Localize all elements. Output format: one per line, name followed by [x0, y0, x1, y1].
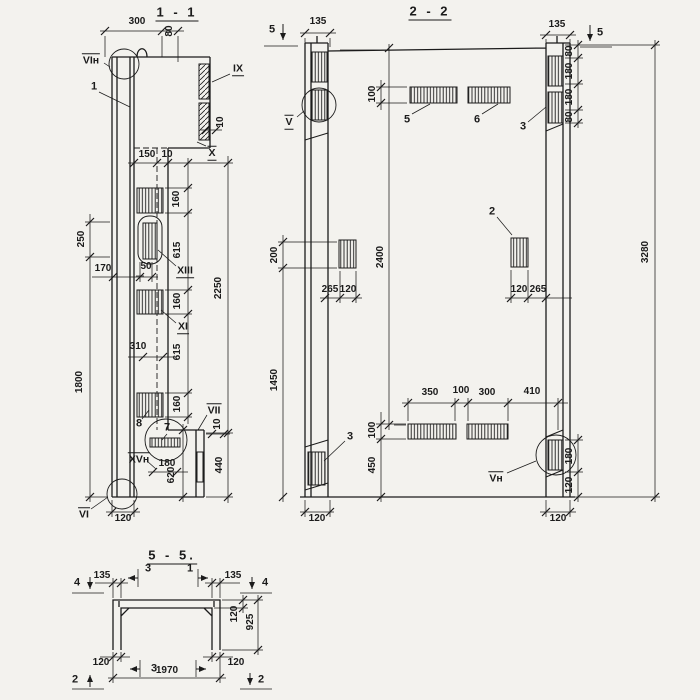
detail-ref-label: XIII: [176, 264, 194, 278]
dimension-label: 80: [164, 24, 176, 37]
section-1-1-outline: [112, 49, 210, 497]
dimension-label: 135: [548, 19, 567, 31]
detail-ref-label: IX: [232, 62, 244, 76]
dimension-label: 3280: [640, 240, 652, 264]
section-cut-label: 5: [596, 27, 604, 40]
embed-plate-V: [312, 90, 327, 120]
dimension-label: 160: [172, 292, 184, 311]
dimension-label: 310: [129, 341, 148, 353]
dimension-label: 615: [172, 343, 184, 362]
section-5-5-outline: [113, 600, 220, 650]
dimension-label: 135: [309, 16, 328, 28]
section-cut-label: 2: [257, 674, 265, 687]
dimension-label: 50: [139, 261, 152, 273]
part-number-label: 8: [135, 418, 143, 431]
detail-ref-label: VII: [207, 403, 222, 417]
dimension-label: 120: [564, 476, 576, 495]
embed-plate: [137, 188, 163, 213]
section-cut-label: 5: [268, 24, 276, 37]
dimension-label: 100: [452, 385, 471, 397]
dimension-label: 10: [212, 417, 224, 430]
part-number-label: 2: [488, 206, 496, 219]
dimension-label: 80: [564, 110, 576, 123]
embed-plate-5: [410, 87, 457, 103]
dimension-label: 135: [93, 570, 112, 582]
dimension-label: 180: [564, 447, 576, 466]
dimension-label: 10: [160, 149, 173, 161]
dimension-label: 620: [166, 466, 178, 485]
dimension-label: 1800: [74, 370, 86, 394]
slot-plate: [143, 223, 157, 259]
embed-plate: [312, 52, 327, 82]
section-cut-label: 2: [71, 674, 79, 687]
embed-plate-3-upper: [548, 56, 563, 86]
dimension-label: 300: [478, 387, 497, 399]
dimension-label: 2400: [375, 245, 387, 269]
part-number-label: 1: [186, 563, 194, 576]
dimension-label: 250: [76, 230, 88, 249]
embed-plate-8: [137, 393, 163, 417]
dimension-label: 1970: [155, 665, 179, 677]
embed-plate-Vn: [548, 440, 563, 470]
corner-angle-plate: [150, 438, 180, 447]
dimension-label: 100: [367, 421, 379, 440]
part-number-label: 3: [346, 431, 354, 444]
detail-ref-label: XVн: [128, 452, 150, 466]
dimension-label: 150: [138, 149, 157, 161]
dimension-label: 450: [367, 456, 379, 475]
dimension-label: 120: [339, 284, 358, 296]
part-number-label: 1: [90, 81, 98, 94]
embed-plate-6: [468, 87, 510, 103]
drawing-canvas: [0, 0, 700, 700]
dimension-label: 925: [245, 613, 257, 632]
dimension-label: 10: [215, 115, 227, 128]
part-number-label: 3: [519, 121, 527, 134]
embed-plate: [137, 290, 163, 314]
section-cut-label: 4: [261, 577, 269, 590]
embed-plate-3-lower: [548, 92, 563, 123]
detail-ref-label: VI: [78, 507, 90, 521]
bracket-plate: [197, 452, 203, 482]
dimension-label: 120: [229, 605, 241, 624]
section-title: 1 - 1: [155, 5, 198, 22]
embed-plate-IX-upper: [199, 64, 209, 99]
part-number-label: 7: [163, 422, 171, 435]
section-title: 2 - 2: [408, 4, 451, 21]
dimension-label: 2250: [213, 276, 225, 300]
dimension-label: 350: [421, 387, 440, 399]
detail-ref-label: X: [207, 146, 216, 161]
dimension-label: 300: [128, 16, 147, 28]
dimension-label: 265: [321, 284, 340, 296]
dimension-label: 135: [224, 570, 243, 582]
dimension-label: 120: [510, 284, 529, 296]
embed-plate-IX-lower: [199, 103, 209, 140]
dimension-label: 120: [227, 657, 246, 669]
embed-plate: [408, 424, 456, 439]
dimension-label: 160: [172, 395, 184, 414]
part-number-label: 5: [403, 114, 411, 127]
dimension-label: 120: [92, 657, 111, 669]
embed-plate-2: [511, 238, 528, 267]
dimension-label: 120: [549, 513, 568, 525]
detail-ref-label: VIн: [82, 53, 100, 67]
detail-ref-label: XI: [177, 320, 189, 334]
embed-plate-3-bottom: [308, 452, 325, 485]
dimension-label: 120: [308, 513, 327, 525]
dimension-label: 120: [114, 513, 133, 525]
detail-ref-label: Vн: [488, 471, 503, 485]
part-number-label: 3: [144, 563, 152, 576]
dimension-label: 410: [523, 386, 542, 398]
detail-ref-label: V: [284, 115, 293, 130]
dimension-label: 200: [269, 246, 281, 265]
dimension-label: 100: [367, 85, 379, 104]
blueprint-page: 1 - 130080VIн1IX10X15010160615225017050X…: [0, 0, 700, 700]
section-2-2-drawing: [264, 24, 660, 517]
dimension-label: 160: [171, 190, 183, 209]
section-cut-label: 4: [73, 577, 81, 590]
part-number-label: 6: [473, 114, 481, 127]
dimension-label: 80: [564, 44, 576, 57]
embed-plate: [467, 424, 508, 439]
dimension-label: 265: [529, 284, 548, 296]
dimension-label: 615: [172, 241, 184, 260]
dimension-label: 180: [564, 88, 576, 107]
dimension-label: 440: [214, 456, 226, 475]
dimension-label: 1450: [269, 368, 281, 392]
dimension-label: 180: [564, 62, 576, 81]
dimension-label: 170: [94, 263, 113, 275]
embed-plate: [339, 240, 356, 268]
